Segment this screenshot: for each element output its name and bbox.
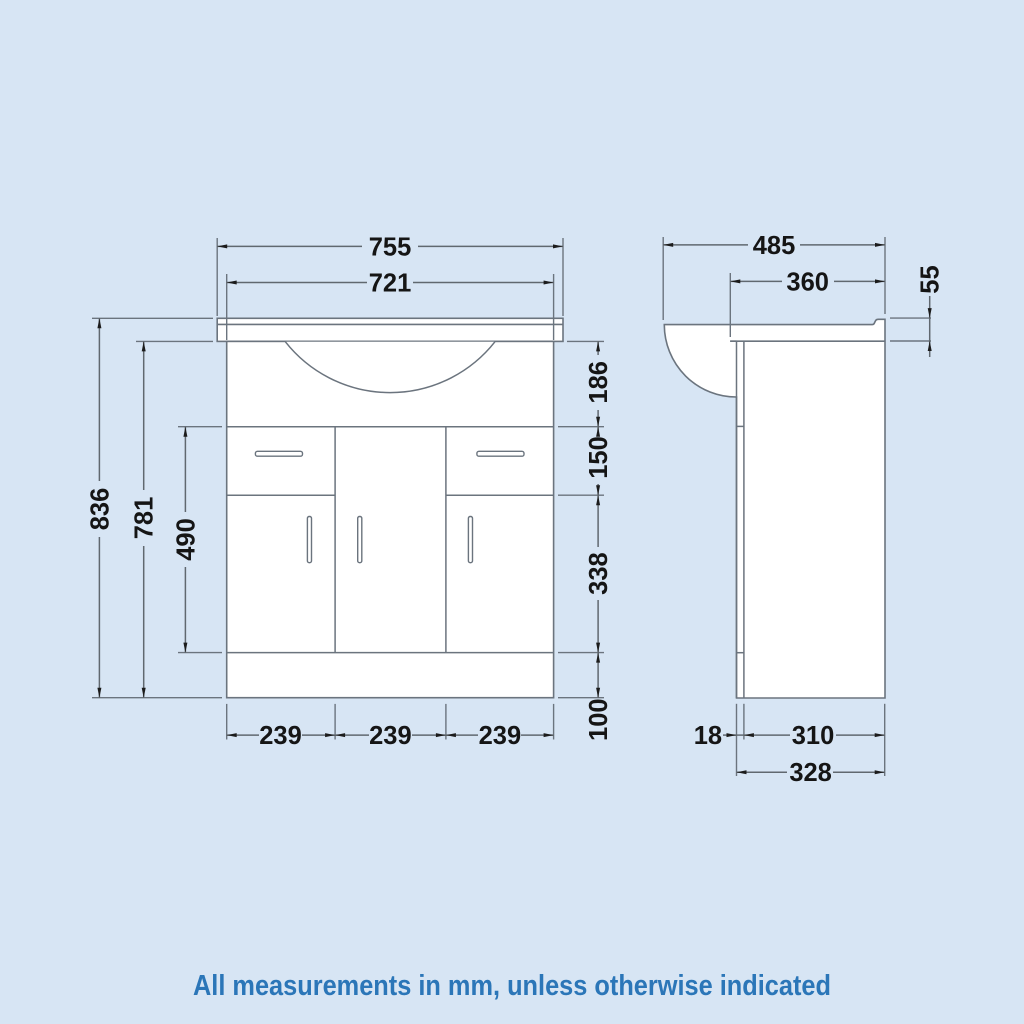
svg-text:360: 360 <box>786 268 829 296</box>
svg-text:328: 328 <box>789 759 832 787</box>
svg-text:490: 490 <box>172 518 200 561</box>
svg-text:239: 239 <box>479 722 522 750</box>
svg-text:150: 150 <box>585 436 613 479</box>
svg-text:310: 310 <box>792 722 835 750</box>
svg-text:485: 485 <box>753 232 796 260</box>
svg-text:55: 55 <box>917 265 945 293</box>
svg-text:338: 338 <box>585 552 613 595</box>
svg-text:All measurements in mm, unless: All measurements in mm, unless otherwise… <box>193 970 831 1002</box>
svg-text:836: 836 <box>86 488 114 531</box>
svg-text:781: 781 <box>131 497 159 540</box>
svg-text:755: 755 <box>369 233 412 261</box>
svg-text:239: 239 <box>259 722 302 750</box>
svg-text:100: 100 <box>585 698 613 741</box>
svg-text:239: 239 <box>369 722 412 750</box>
svg-text:18: 18 <box>694 722 722 750</box>
svg-text:721: 721 <box>369 270 412 298</box>
svg-text:186: 186 <box>585 361 613 404</box>
